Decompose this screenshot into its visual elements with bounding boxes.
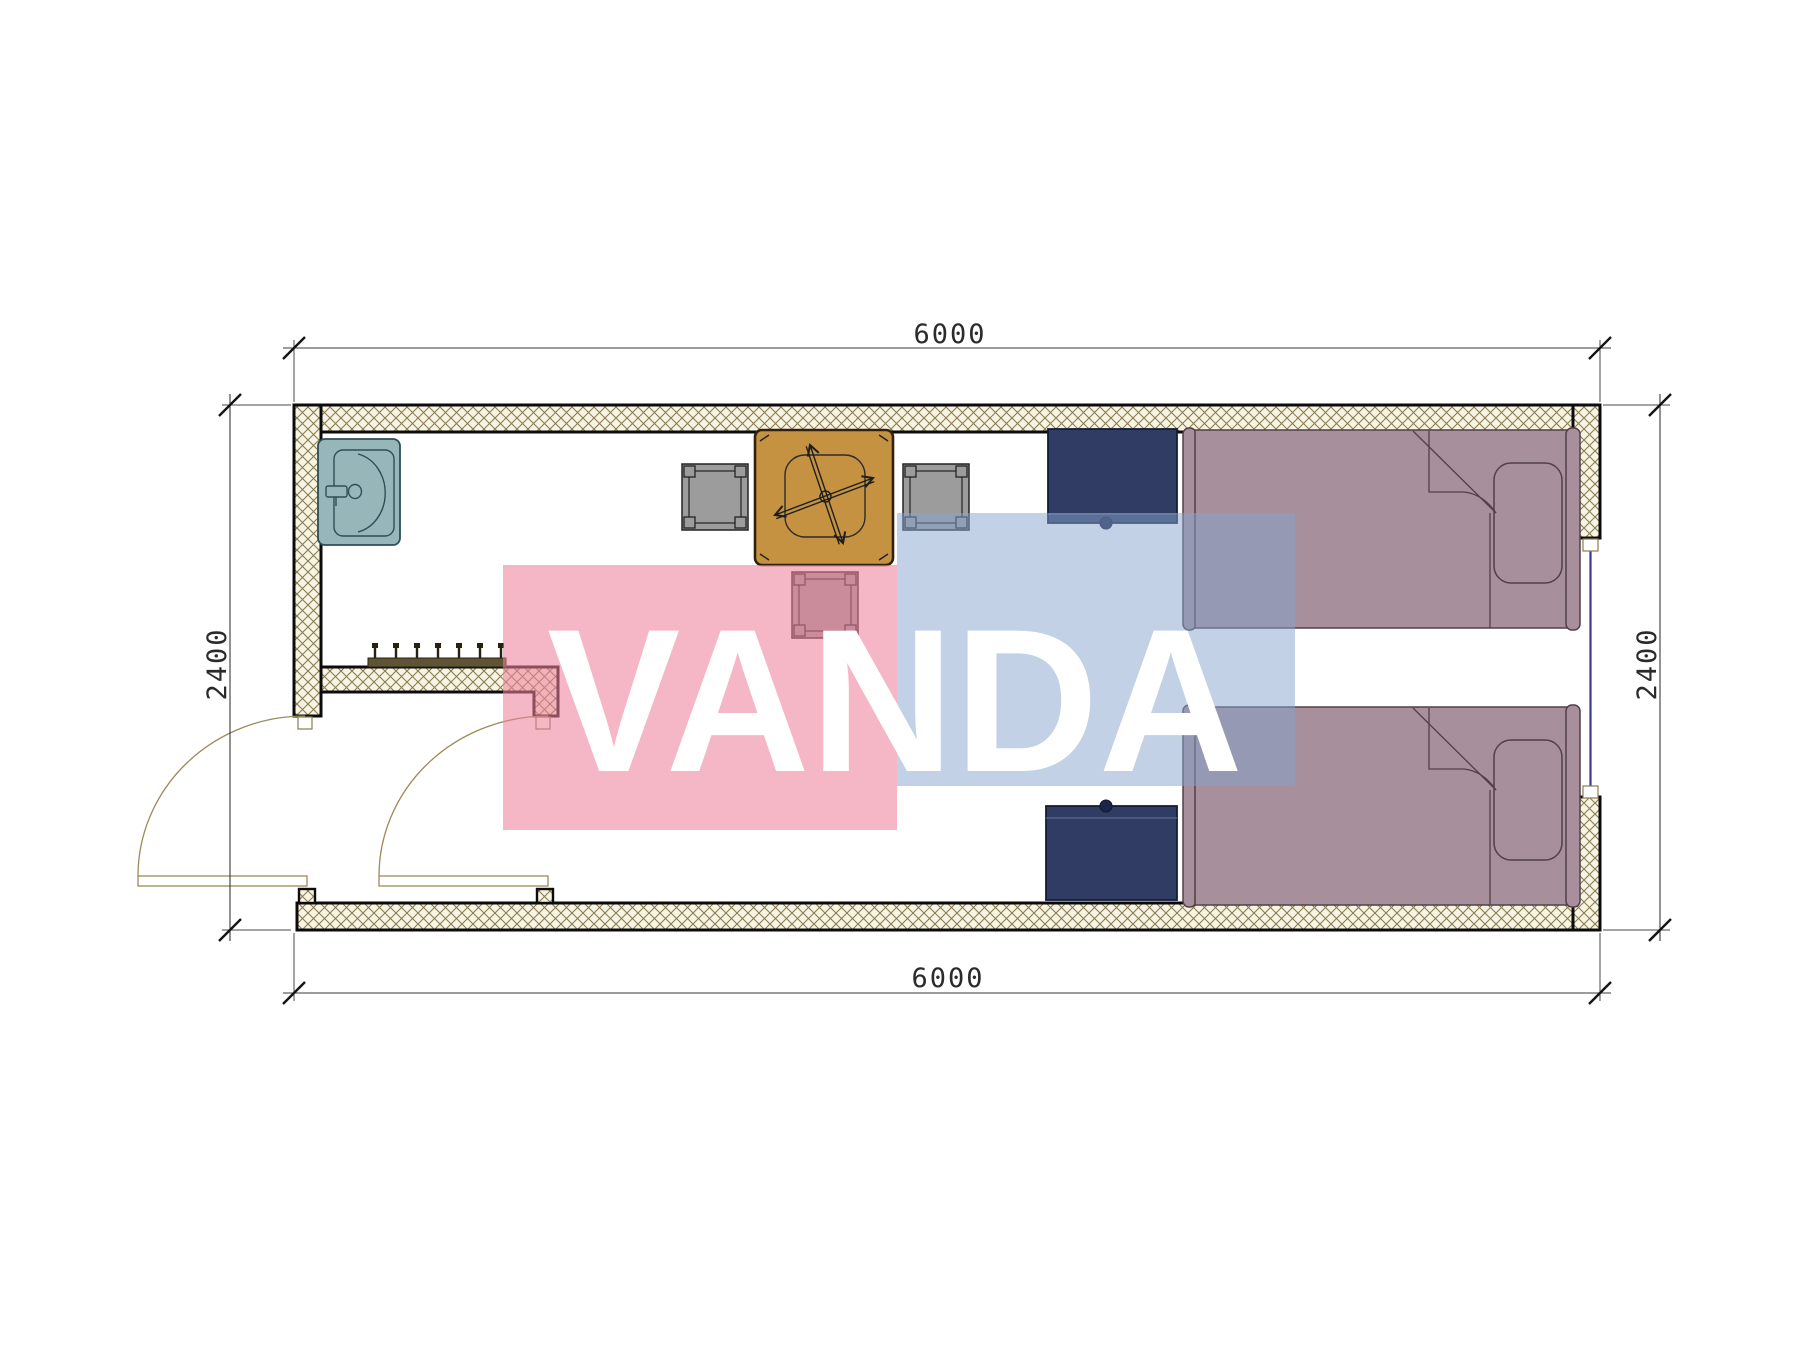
dining-table — [755, 430, 893, 565]
wall-top — [294, 405, 1600, 432]
door-jamb-stub-right — [537, 889, 553, 903]
dimension-label-left: 2400 — [202, 627, 233, 700]
door-jamb-left-wall-end — [298, 717, 312, 729]
window-jamb-bottom — [1583, 786, 1598, 798]
bed-headboard — [1566, 428, 1580, 630]
sink — [318, 439, 400, 545]
dimension-label-right: 2400 — [1632, 627, 1663, 700]
coat-rack-bar — [368, 658, 506, 667]
wall-left — [294, 405, 321, 716]
pillow — [1494, 463, 1562, 583]
door-jamb-stub-left — [299, 889, 315, 903]
dimension-label-bottom: 6000 — [911, 963, 984, 994]
chair-left — [682, 464, 748, 530]
faucet — [326, 486, 347, 497]
door-leaf — [138, 876, 307, 886]
watermark-text: VANDA — [547, 586, 1243, 814]
wall-bottom — [297, 903, 1600, 930]
pillow — [1494, 740, 1562, 860]
floor-plan-drawing: VANDA 6000 6000 2400 2400 — [0, 0, 1800, 1350]
bed-headboard — [1566, 705, 1580, 907]
dimension-label-top: 6000 — [913, 319, 986, 350]
door-leaf — [379, 876, 548, 886]
window-jamb-top — [1583, 539, 1598, 551]
floor-plan-sheet: VANDA 6000 6000 2400 2400 — [0, 0, 1800, 1350]
nightstand-bottom — [1046, 800, 1177, 900]
